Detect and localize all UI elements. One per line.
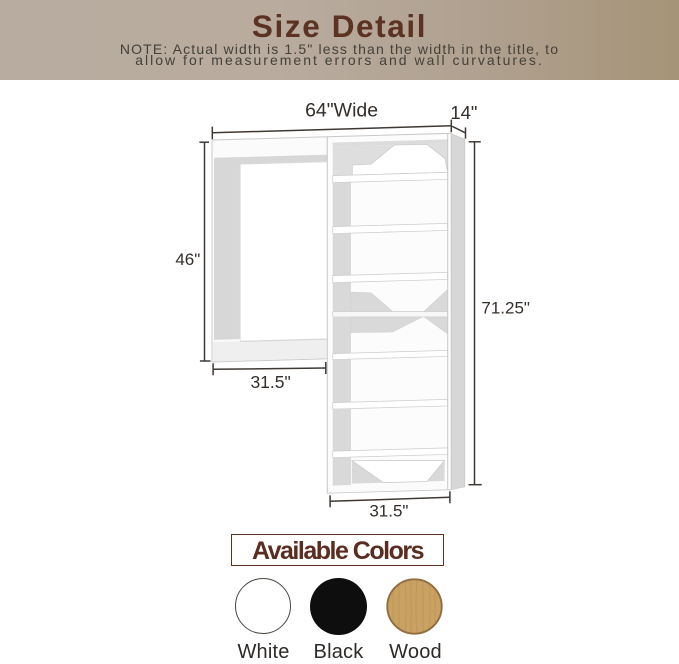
svg-text:71.25": 71.25" bbox=[481, 299, 530, 318]
svg-text:14": 14" bbox=[450, 102, 477, 123]
svg-text:64"Wide: 64"Wide bbox=[305, 99, 378, 121]
svg-text:46": 46" bbox=[175, 250, 200, 269]
svg-text:31.5": 31.5" bbox=[369, 502, 408, 521]
svg-text:31.5": 31.5" bbox=[250, 372, 290, 392]
